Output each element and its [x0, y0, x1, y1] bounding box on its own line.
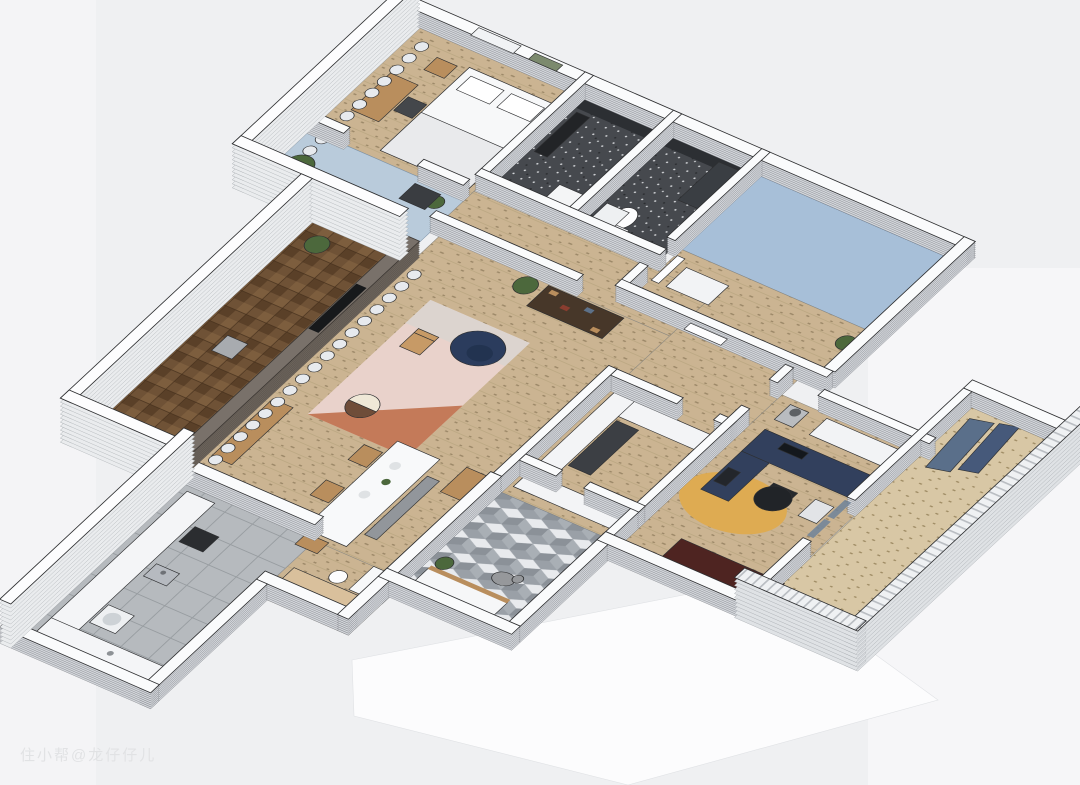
floorplan-canvas: 住小帮@龙仔仔儿 [0, 0, 1080, 785]
watermark-text: 住小帮@龙仔仔儿 [20, 747, 156, 764]
floorplan-3d-view[interactable]: 住小帮@龙仔仔儿 [0, 0, 1080, 785]
